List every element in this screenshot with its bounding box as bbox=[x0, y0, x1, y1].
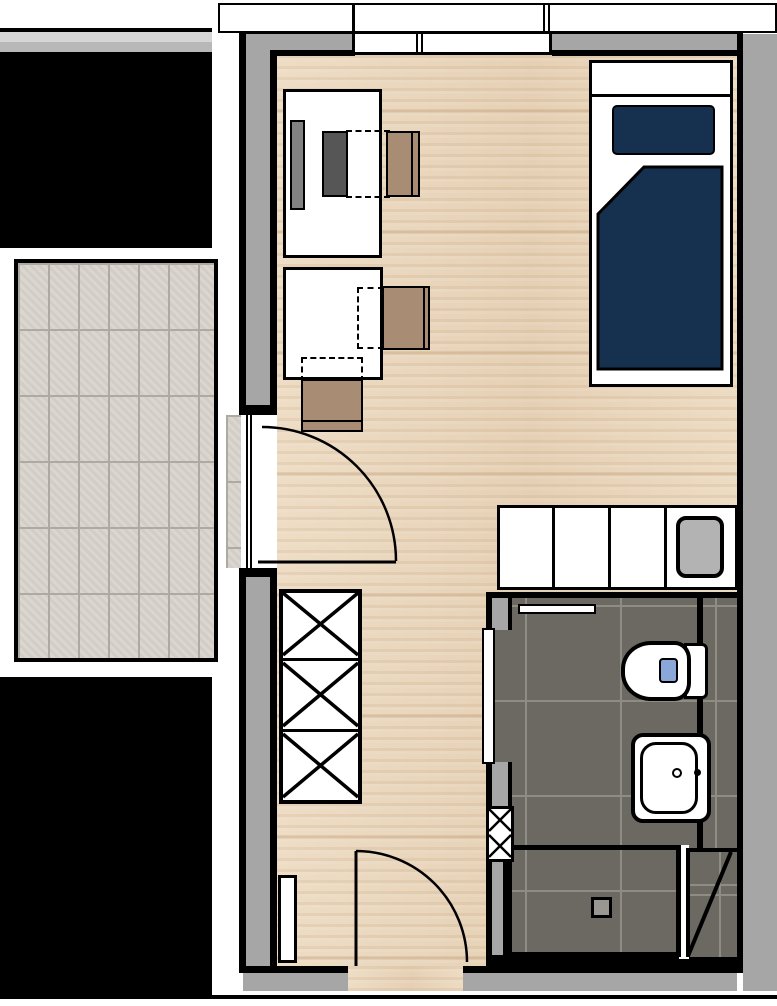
bed-headboard-line bbox=[589, 94, 733, 97]
wall-west-lower-inner bbox=[270, 577, 277, 966]
balcony-slab bbox=[14, 259, 218, 662]
monitor-icon bbox=[290, 120, 305, 210]
wall-north-right-inner bbox=[552, 50, 737, 56]
wall-south-fill-right bbox=[463, 973, 737, 991]
sill-divider-1 bbox=[352, 3, 355, 33]
toilet-bowl bbox=[621, 641, 691, 701]
wall-west-lower-fill bbox=[246, 577, 270, 991]
wall-south-fill-left bbox=[243, 973, 348, 991]
counter-divider-2 bbox=[608, 505, 611, 590]
wall-west-upper-fill bbox=[246, 34, 270, 412]
window-mullion-1 bbox=[416, 33, 418, 53]
exterior-sill-strip bbox=[218, 3, 777, 33]
wardrobe-shelf-line-2 bbox=[279, 729, 362, 732]
sill-divider-2a bbox=[543, 3, 545, 33]
plan-bottom-line bbox=[0, 995, 777, 999]
radiator bbox=[278, 875, 297, 963]
built-in-sink bbox=[676, 516, 724, 578]
office-chair-under-desk bbox=[346, 130, 390, 198]
washbasin-faucet-dot bbox=[694, 769, 701, 776]
washbasin-basin bbox=[640, 742, 698, 814]
washbasin-drain-dot bbox=[672, 768, 682, 778]
towel-rail bbox=[518, 604, 596, 614]
bed-pillow bbox=[612, 105, 715, 155]
mask-upper-left bbox=[0, 52, 212, 248]
wall-south-inner-right bbox=[463, 966, 737, 973]
side-chair-right-under bbox=[357, 287, 384, 349]
shower-floor-drain bbox=[591, 897, 612, 918]
entry-door-floor bbox=[348, 966, 463, 991]
window-mullion-2 bbox=[421, 33, 423, 53]
toilet-flush-button bbox=[659, 658, 678, 683]
counter-divider-1 bbox=[552, 505, 555, 590]
sill-divider-2b bbox=[548, 3, 550, 33]
wall-west-lower-outer bbox=[239, 568, 246, 973]
wall-north-left-inner bbox=[270, 50, 355, 56]
side-chair-bottom-line bbox=[301, 420, 363, 422]
office-chair-back-line bbox=[411, 131, 413, 197]
neighbor-wall-band-mid bbox=[0, 42, 212, 52]
wall-west-upper-inner bbox=[270, 50, 277, 412]
wall-east-fill bbox=[743, 36, 777, 991]
balcony-door-frame-line-1 bbox=[246, 415, 248, 568]
wardrobe-shelf-line-1 bbox=[279, 658, 362, 661]
office-chair-back bbox=[386, 131, 420, 197]
window bbox=[352, 31, 552, 55]
balcony-door-frame-line-2 bbox=[250, 415, 252, 568]
bathroom-wall-west-edge-b bbox=[508, 762, 512, 806]
mask-lower-left bbox=[0, 677, 215, 995]
bathroom-door-leaf bbox=[482, 628, 495, 764]
installation-duct bbox=[486, 806, 514, 862]
pc-tower-icon bbox=[322, 131, 348, 197]
side-chair-bottom-back bbox=[301, 379, 363, 432]
neighbor-wall-band-light bbox=[0, 32, 212, 42]
floor-plan-canvas bbox=[0, 0, 777, 1006]
bathroom-wall-west-fill-a bbox=[492, 598, 508, 630]
balcony-tiles bbox=[18, 263, 214, 658]
side-chair-right-line bbox=[423, 286, 425, 350]
bathroom-wall-west-fill-b bbox=[492, 762, 508, 806]
wall-west-cap-above-door bbox=[239, 405, 277, 415]
bathroom-wall-north bbox=[486, 592, 743, 598]
wardrobe bbox=[279, 589, 362, 804]
balcony-door-threshold bbox=[226, 415, 241, 568]
bathroom-wall-west-edge-a bbox=[508, 598, 512, 630]
balcony-door-frame bbox=[241, 415, 257, 568]
sloped-corner-zone bbox=[686, 848, 737, 957]
wall-west-upper-outer bbox=[239, 27, 246, 415]
wall-south-inner-left bbox=[243, 966, 348, 973]
counter-divider-3 bbox=[664, 505, 667, 590]
